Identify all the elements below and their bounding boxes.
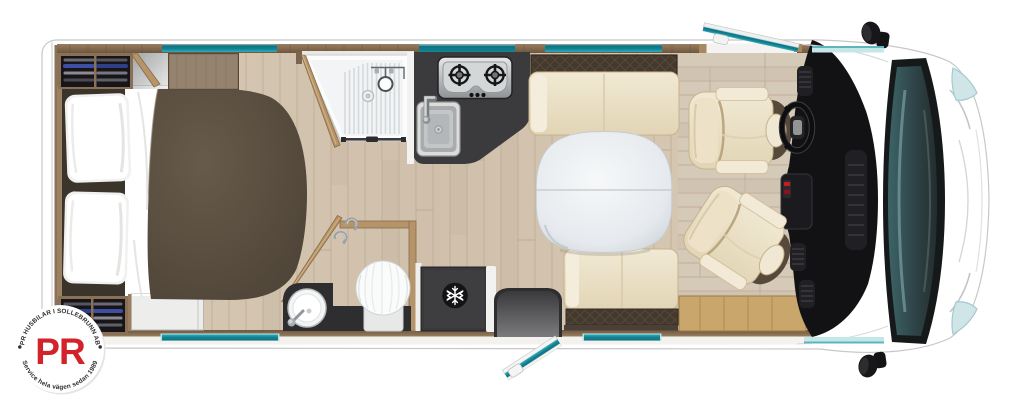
svg-text:PR: PR (35, 331, 85, 372)
